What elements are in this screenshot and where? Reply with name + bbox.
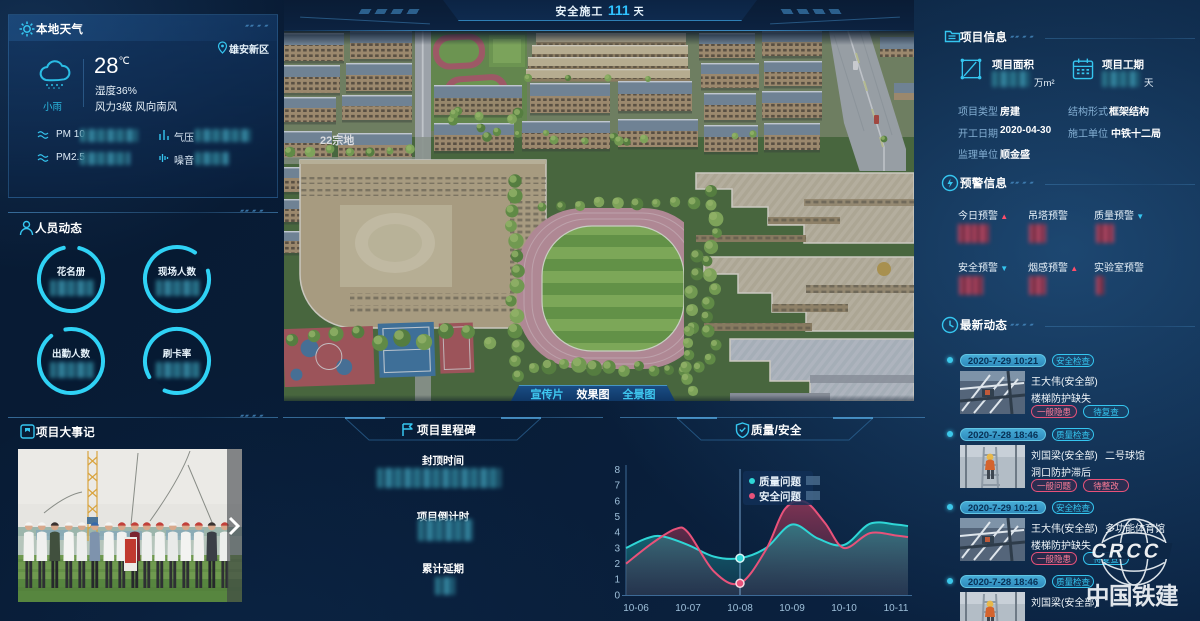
svg-text:0: 0	[614, 590, 620, 601]
svg-text:4: 4	[614, 528, 620, 539]
svg-text:2: 2	[614, 559, 620, 570]
svg-text:3: 3	[614, 543, 620, 554]
svg-text:10-07: 10-07	[675, 603, 701, 614]
svg-text:10-09: 10-09	[779, 603, 805, 614]
svg-text:10-08: 10-08	[727, 603, 753, 614]
svg-text:8: 8	[614, 465, 620, 476]
svg-text:10-06: 10-06	[623, 603, 649, 614]
svg-text:出勤人数: 出勤人数	[52, 348, 91, 360]
svg-text:10-11: 10-11	[884, 603, 909, 614]
svg-text:1: 1	[614, 575, 620, 586]
svg-text:质量问题: 质量问题	[759, 475, 801, 488]
svg-text:刷卡率: 刷卡率	[163, 348, 192, 360]
svg-text:中国铁建: 中国铁建	[1086, 583, 1179, 609]
svg-text:6: 6	[614, 496, 620, 507]
svg-text:5: 5	[614, 512, 620, 523]
svg-text:现场人数: 现场人数	[158, 266, 197, 278]
svg-text:安全问题: 安全问题	[759, 490, 801, 503]
svg-text:7: 7	[614, 481, 620, 492]
svg-text:10-10: 10-10	[831, 603, 857, 614]
svg-text:花名册: 花名册	[57, 266, 86, 278]
svg-text:CRCC: CRCC	[1089, 541, 1163, 563]
